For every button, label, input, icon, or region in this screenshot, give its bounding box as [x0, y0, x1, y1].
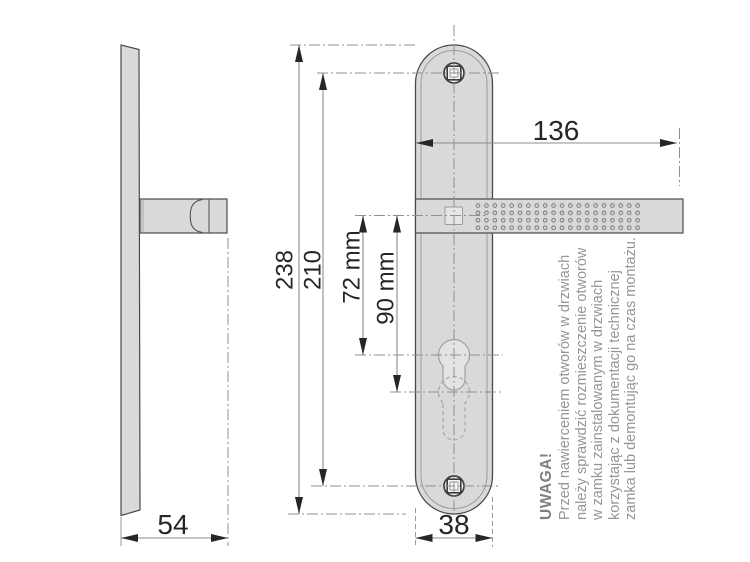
grip-dot — [627, 211, 631, 215]
grip-dot — [552, 204, 556, 208]
warning-line: w zamku zainstalowanym w drzwiach — [590, 240, 607, 520]
arrowhead-down — [359, 338, 367, 355]
grip-dot — [501, 204, 505, 208]
arrowhead-up — [393, 216, 401, 233]
arrowhead-down — [295, 497, 303, 514]
arrowhead-up — [319, 73, 327, 90]
grip-dot — [510, 211, 514, 215]
grip-dot — [619, 226, 623, 230]
grip-dot — [476, 211, 480, 215]
grip-dot — [518, 218, 522, 222]
grip-dot — [585, 204, 589, 208]
grip-dot — [493, 204, 497, 208]
arrowhead-left — [121, 534, 138, 542]
grip-dot — [611, 211, 615, 215]
arrowhead-right — [476, 534, 493, 542]
grip-dot — [611, 204, 615, 208]
grip-dot — [493, 218, 497, 222]
arrowhead-down — [319, 469, 327, 486]
grip-dot — [636, 218, 640, 222]
grip-dot — [485, 204, 489, 208]
warning-heading: UWAGA! — [538, 240, 555, 520]
grip-dot — [527, 218, 531, 222]
grip-dot — [518, 204, 522, 208]
grip-dot — [569, 218, 573, 222]
grip-dot — [476, 218, 480, 222]
warning-line: zamka lub demontując go na czas montażu. — [623, 240, 640, 520]
grip-dot — [627, 204, 631, 208]
grip-dot — [619, 218, 623, 222]
dim-label-238: 238 — [271, 250, 298, 290]
grip-dot — [552, 211, 556, 215]
dimension-54: 54 — [121, 509, 228, 542]
grip-dot — [543, 226, 547, 230]
grip-dot — [585, 218, 589, 222]
grip-dot — [510, 226, 514, 230]
grip-dot — [535, 204, 539, 208]
dim-label-38: 38 — [438, 509, 469, 540]
arrowhead-down — [393, 375, 401, 392]
grip-dot — [577, 226, 581, 230]
grip-dot — [493, 211, 497, 215]
grip-dot — [577, 218, 581, 222]
grip-dot — [485, 226, 489, 230]
warning-line: korzystając z dokumentacji technicznej — [607, 240, 624, 520]
grip-dot — [535, 218, 539, 222]
grip-dot — [543, 211, 547, 215]
grip-dot — [627, 218, 631, 222]
side-handle-neck — [140, 199, 227, 233]
grip-dot — [476, 204, 480, 208]
arrowhead-left — [416, 534, 433, 542]
warning-line: Przed nawierceniem otworów w drzwiach — [557, 240, 574, 520]
dim-label-136: 136 — [533, 115, 580, 146]
arrowhead-up — [359, 216, 367, 233]
grip-dot — [543, 218, 547, 222]
side-view — [121, 45, 227, 516]
grip-dot — [560, 204, 564, 208]
dim-label-72mm: 72 mm — [338, 230, 365, 303]
warning-note: UWAGA! Przed nawierceniem otworów w drzw… — [538, 240, 642, 520]
grip-dot — [501, 226, 505, 230]
arrowhead-up — [295, 45, 303, 62]
grip-dot — [594, 226, 598, 230]
dimension-90mm: 90 mm — [372, 216, 401, 393]
grip-dot — [501, 218, 505, 222]
grip-dot — [485, 211, 489, 215]
dimension-38: 38 — [416, 509, 493, 542]
grip-dot — [510, 204, 514, 208]
grip-dot — [535, 211, 539, 215]
grip-dot — [518, 226, 522, 230]
dimension-72mm: 72 mm — [338, 216, 367, 356]
grip-dot — [636, 226, 640, 230]
grip-dot — [577, 211, 581, 215]
grip-dot — [569, 204, 573, 208]
grip-dot — [611, 226, 615, 230]
dim-label-210: 210 — [299, 250, 326, 290]
side-plate — [121, 45, 140, 516]
grip-dot — [602, 218, 606, 222]
dimension-238: 238 — [271, 45, 303, 514]
grip-dot — [560, 211, 564, 215]
grip-dot — [585, 226, 589, 230]
grip-dot — [577, 204, 581, 208]
dimension-210: 210 — [299, 73, 327, 486]
grip-dot — [627, 226, 631, 230]
warning-line: należy sprawdzić rozmieszczenie otworów — [574, 240, 591, 520]
grip-dot — [527, 211, 531, 215]
grip-dot — [552, 218, 556, 222]
grip-dot — [619, 204, 623, 208]
grip-dot — [636, 204, 640, 208]
arrowhead-right — [660, 139, 677, 147]
grip-dot — [493, 226, 497, 230]
grip-dot — [560, 226, 564, 230]
grip-dot — [594, 218, 598, 222]
arrowhead-right — [211, 534, 228, 542]
grip-dot — [485, 218, 489, 222]
grip-dot — [527, 226, 531, 230]
grip-dot — [636, 211, 640, 215]
grip-dot — [619, 211, 623, 215]
grip-dot — [602, 226, 606, 230]
dim-label-90mm: 90 mm — [372, 251, 399, 324]
grip-dot — [527, 204, 531, 208]
dim-label-54: 54 — [157, 509, 188, 540]
grip-dot — [611, 218, 615, 222]
grip-dot — [501, 211, 505, 215]
grip-dot — [560, 218, 564, 222]
grip-dot — [569, 226, 573, 230]
grip-dot — [476, 226, 480, 230]
side-neck-shadow — [141, 200, 145, 233]
grip-dot — [602, 211, 606, 215]
grip-dot — [518, 211, 522, 215]
grip-dot — [602, 204, 606, 208]
grip-dot — [569, 211, 573, 215]
grip-dot — [585, 211, 589, 215]
grip-dot — [510, 218, 514, 222]
grip-dot — [594, 211, 598, 215]
grip-dot — [535, 226, 539, 230]
grip-dot — [552, 226, 556, 230]
grip-dot — [543, 204, 547, 208]
grip-dot — [594, 204, 598, 208]
